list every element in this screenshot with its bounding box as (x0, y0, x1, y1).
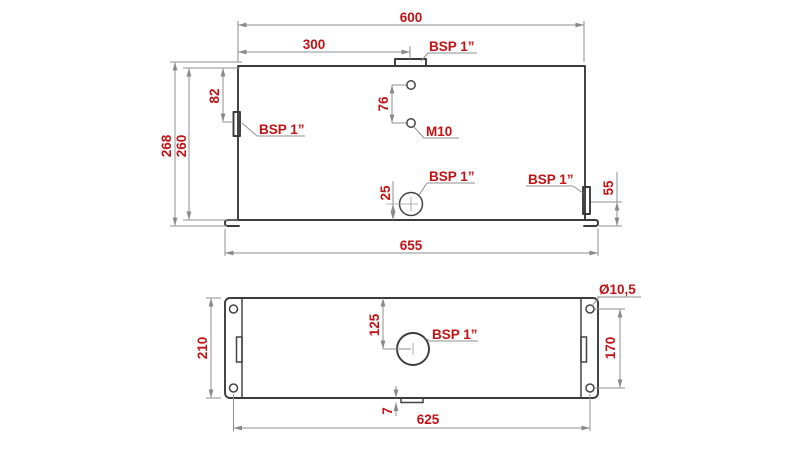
m10-hole-bottom (407, 119, 415, 127)
left-foot (225, 220, 239, 226)
front-view: 600 300 BSP 1” 82 BSP 1” (159, 10, 622, 256)
drawing-canvas: 600 300 BSP 1” 82 BSP 1” (0, 0, 800, 450)
label-bsp-drain-text: BSP 1” (429, 169, 475, 184)
dim-625-text: 625 (417, 412, 440, 427)
label-hole-diameter-text: Ø10,5 (599, 282, 636, 297)
label-bsp-right-text: BSP 1” (528, 172, 574, 187)
dim-82: 82 (207, 68, 233, 122)
label-m10-text: M10 (426, 124, 452, 139)
dim-76-text: 76 (376, 96, 391, 112)
plan-view: 210 125 BSP 1” Ø10,5 170 (195, 282, 641, 431)
plan-outline (225, 298, 598, 398)
left-side-port (234, 112, 241, 136)
mount-hole-top-left (230, 305, 238, 313)
dim-125: 125 (367, 298, 411, 349)
dim-76: 76 (376, 85, 406, 123)
label-hole-diameter: Ø10,5 (592, 282, 641, 306)
dim-55-text: 55 (601, 180, 616, 196)
dim-600: 600 (238, 10, 584, 62)
label-bsp-top-text: BSP 1” (429, 39, 475, 54)
dim-210-text: 210 (195, 337, 210, 360)
label-bsp-plan-text: BSP 1” (432, 327, 478, 342)
mount-hole-top-right (586, 305, 594, 313)
mount-hole-bottom-left (230, 384, 238, 392)
dim-655: 655 (225, 229, 598, 256)
dim-55: 55 (591, 172, 622, 226)
dim-7-text: 7 (380, 407, 395, 415)
dim-170: 170 (595, 309, 625, 388)
m10-hole-top (407, 81, 415, 89)
label-m10: M10 (414, 124, 459, 139)
dim-300: 300 (238, 37, 410, 59)
tank-technical-drawing: 600 300 BSP 1” 82 BSP 1” (0, 0, 800, 450)
dim-655-text: 655 (400, 238, 423, 253)
dim-7: 7 (380, 386, 396, 416)
dim-125-text: 125 (367, 313, 382, 336)
dim-625: 625 (234, 394, 591, 431)
right-foot (584, 220, 598, 226)
label-bsp-left: BSP 1” (242, 122, 305, 137)
label-bsp-right: BSP 1” (526, 172, 583, 193)
dim-25-text: 25 (378, 185, 393, 201)
plan-left-port-slot (237, 337, 243, 362)
dim-210: 210 (195, 298, 221, 398)
dim-82-text: 82 (207, 88, 222, 103)
dim-268-text: 268 (159, 134, 174, 157)
plan-right-port-slot (581, 337, 587, 362)
dim-600-text: 600 (400, 10, 423, 25)
dim-300-text: 300 (303, 37, 326, 52)
dim-268: 268 (159, 62, 242, 226)
label-bsp-drain: BSP 1” (419, 169, 475, 195)
label-bsp-top: BSP 1” (421, 39, 477, 61)
label-bsp-plan: BSP 1” (425, 327, 478, 342)
dim-260-text: 260 (174, 135, 189, 158)
mount-hole-bottom-right (586, 384, 594, 392)
dim-170-text: 170 (603, 337, 618, 360)
label-bsp-left-text: BSP 1” (259, 122, 305, 137)
dim-25: 25 (378, 181, 393, 220)
